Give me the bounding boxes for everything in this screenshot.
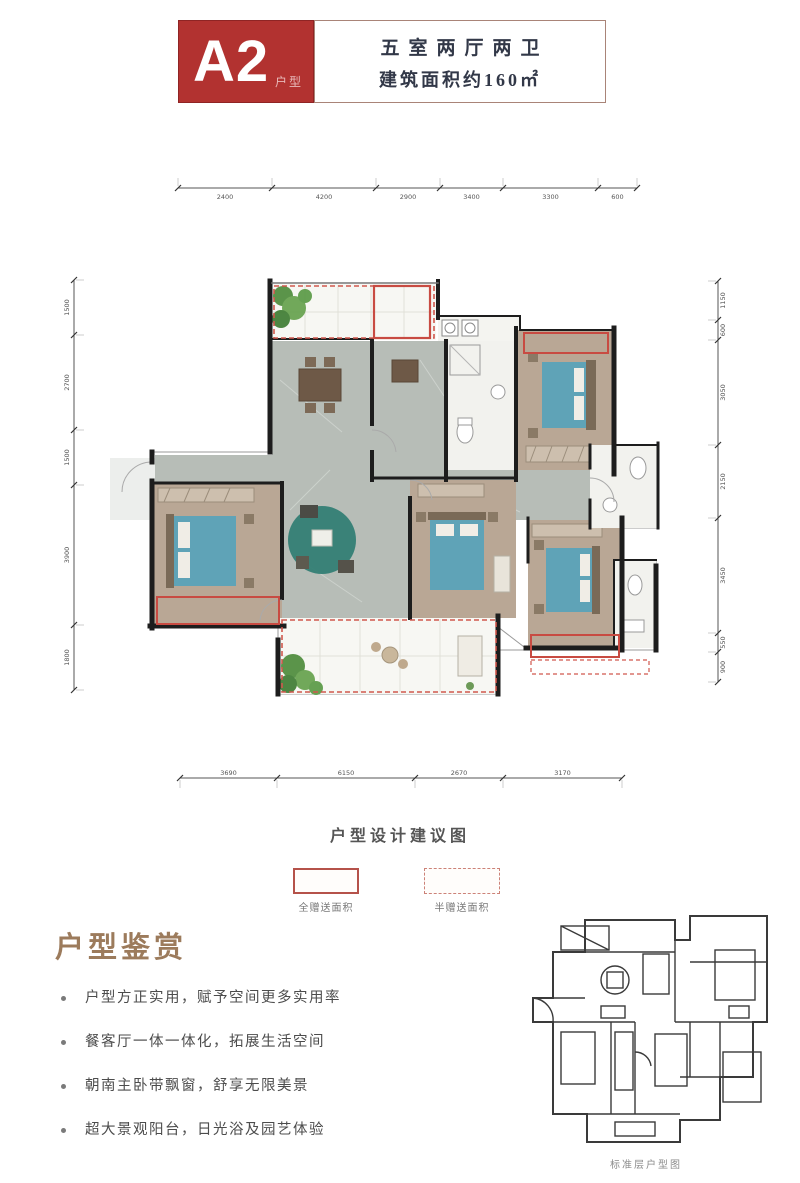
legend-label: 半赠送面积: [416, 899, 508, 914]
unit-spec-box: 五室两厅两卫 建筑面积约160㎡: [314, 20, 606, 103]
svg-text:2150: 2150: [719, 473, 727, 490]
bullet-icon: [61, 1040, 66, 1045]
bullet-text: 餐客厅一体一体化，拓展生活空间: [85, 1034, 325, 1050]
room-count-text: 五室两厅两卫: [315, 33, 605, 60]
svg-text:2700: 2700: [63, 374, 71, 391]
svg-text:4200: 4200: [316, 193, 333, 201]
bullet-icon: [61, 1128, 66, 1133]
list-item: 户型方正实用，赋予空间更多实用率: [55, 990, 485, 1006]
plan-caption: 户型设计建议图: [0, 822, 800, 846]
bullet-icon: [61, 1084, 66, 1089]
svg-text:1150: 1150: [719, 292, 727, 309]
brochure-page: A2 户型 五室两厅两卫 建筑面积约160㎡: [0, 0, 800, 1183]
thumbnail-caption: 标准层户型图: [515, 1156, 777, 1171]
svg-text:1500: 1500: [63, 449, 71, 466]
svg-text:600: 600: [611, 193, 623, 201]
svg-text:3450: 3450: [719, 567, 727, 584]
svg-text:6150: 6150: [338, 769, 355, 777]
unit-code-badge: A2 户型: [178, 20, 314, 103]
legend-item-full-gift: 全赠送面积: [284, 868, 368, 914]
svg-text:600: 600: [719, 324, 727, 336]
legend-item-half-gift: 半赠送面积: [416, 868, 508, 914]
svg-text:550: 550: [719, 636, 727, 648]
svg-text:2400: 2400: [217, 193, 234, 201]
appreciation-list: 户型方正实用，赋予空间更多实用率 餐客厅一体一体化，拓展生活空间 朝南主卧带飘窗…: [55, 990, 485, 1166]
area-text: 建筑面积约160㎡: [315, 66, 605, 92]
svg-text:3170: 3170: [554, 769, 571, 777]
svg-text:1800: 1800: [63, 649, 71, 666]
svg-text:900: 900: [719, 661, 727, 673]
svg-text:1500: 1500: [63, 299, 71, 316]
svg-text:2900: 2900: [400, 193, 417, 201]
floorplan-diagram: 2400420029003400330060036906150267031701…: [50, 160, 760, 810]
svg-text:3900: 3900: [63, 547, 71, 564]
dashed-red-swatch: [424, 868, 500, 894]
bullet-text: 户型方正实用，赋予空间更多实用率: [85, 990, 341, 1006]
list-item: 餐客厅一体一体化，拓展生活空间: [55, 1034, 485, 1050]
svg-text:3050: 3050: [719, 384, 727, 401]
bullet-icon: [61, 996, 66, 1001]
svg-text:3300: 3300: [542, 193, 559, 201]
list-item: 超大景观阳台，日光浴及园艺体验: [55, 1122, 485, 1138]
solid-red-swatch: [293, 868, 359, 894]
bullet-text: 超大景观阳台，日光浴及园艺体验: [85, 1122, 325, 1138]
bullet-text: 朝南主卧带飘窗，舒享无限美景: [85, 1078, 309, 1094]
legend-label: 全赠送面积: [284, 899, 368, 914]
unit-code-suffix: 户型: [275, 73, 303, 90]
section-title-appreciation: 户型鉴赏: [55, 924, 187, 966]
unit-code: A2: [193, 27, 269, 97]
svg-text:3400: 3400: [463, 193, 480, 201]
floor-fills: [110, 284, 658, 694]
list-item: 朝南主卧带飘窗，舒享无限美景: [55, 1078, 485, 1094]
svg-text:3690: 3690: [220, 769, 237, 777]
standard-floor-thumbnail: [515, 902, 777, 1154]
svg-text:2670: 2670: [451, 769, 468, 777]
